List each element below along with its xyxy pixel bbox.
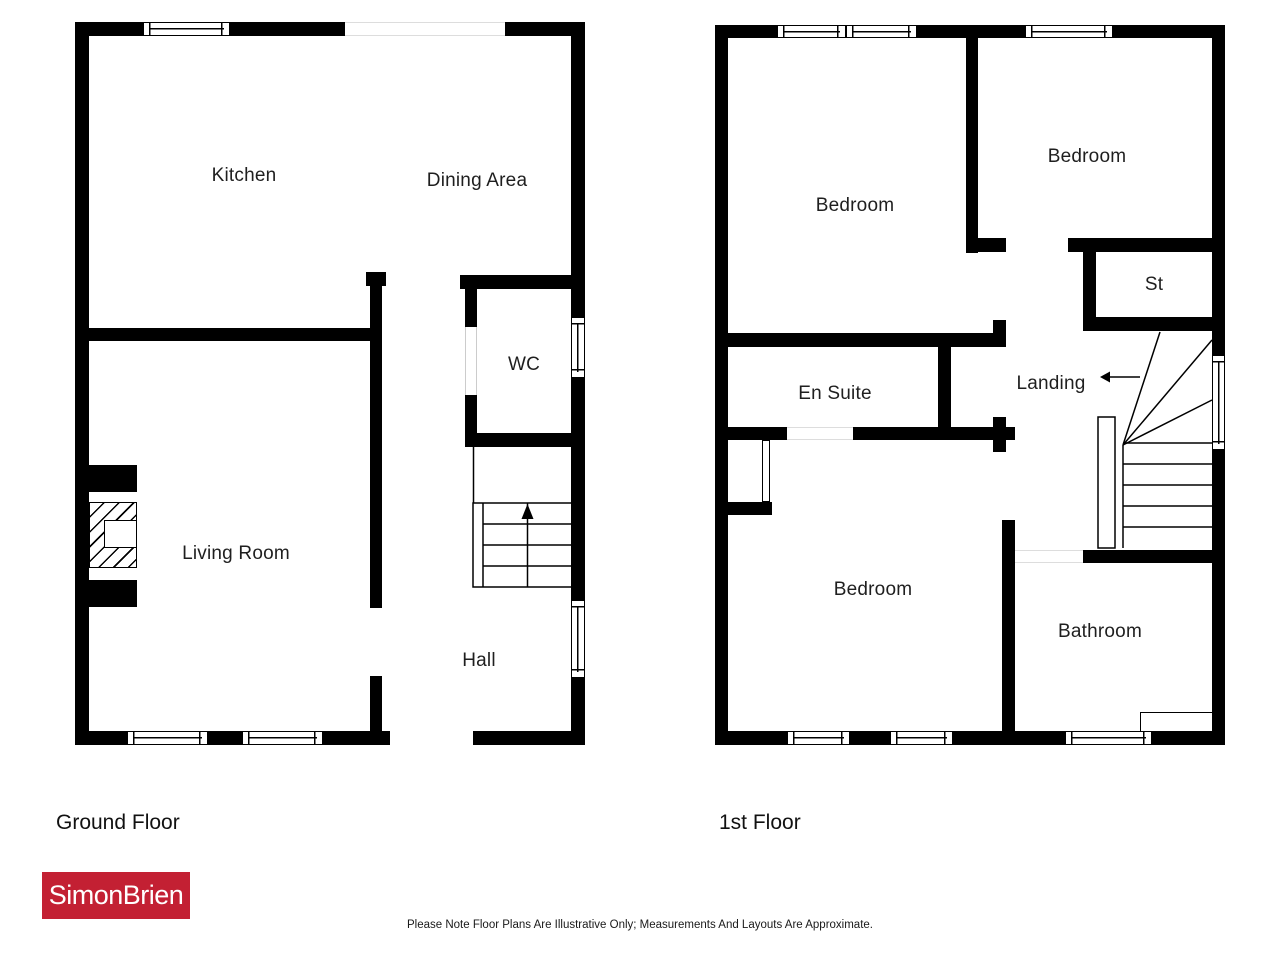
wall [993, 320, 1006, 347]
first-floor-title: 1st Floor [719, 811, 801, 835]
wall [938, 347, 951, 427]
wall [993, 417, 1006, 452]
window [777, 25, 846, 38]
closet-front [762, 440, 770, 502]
wall [473, 731, 585, 745]
wall [728, 427, 787, 440]
wall [370, 274, 382, 608]
wall [1212, 25, 1225, 355]
wall [75, 22, 89, 745]
window [1025, 25, 1113, 38]
chimney-breast [89, 465, 137, 492]
wall [1083, 550, 1212, 563]
ground-floor-title: Ground Floor [56, 811, 180, 835]
wall [1152, 731, 1225, 745]
wall [465, 433, 571, 447]
room-label-bathroom: Bathroom [1058, 621, 1142, 643]
window [127, 731, 208, 745]
wall [850, 731, 890, 745]
window [242, 731, 323, 745]
wall [917, 25, 1025, 38]
wall [465, 289, 477, 327]
wall [715, 731, 787, 745]
wall [1083, 252, 1096, 317]
staircase-up-icon [468, 444, 580, 592]
room-label-bedroom: Bedroom [834, 579, 913, 601]
room-label-wc: WC [508, 354, 540, 376]
wall-opening [345, 22, 505, 36]
window [143, 22, 230, 36]
wall [966, 238, 1006, 252]
wall [75, 731, 127, 745]
room-label-bedroom: Bedroom [816, 195, 895, 217]
disclaimer-text: Please Note Floor Plans Are Illustrative… [0, 919, 1280, 931]
wall [728, 333, 1006, 347]
room-label-kitchen: Kitchen [212, 165, 277, 187]
agency-logo-text: SimonBrien [49, 880, 184, 911]
wall [370, 676, 382, 731]
door-opening [787, 427, 853, 440]
window [1065, 731, 1152, 745]
window [571, 317, 585, 378]
wall [966, 38, 978, 253]
door-opening [1015, 550, 1083, 563]
room-label-landing: Landing [1016, 373, 1085, 395]
wall [728, 502, 772, 515]
wall [953, 731, 1065, 745]
wall [89, 328, 370, 341]
agency-logo: SimonBrien [42, 872, 190, 919]
door-opening [465, 327, 477, 395]
chimney-breast [89, 580, 137, 607]
wall [715, 25, 728, 745]
floorplan-page: Kitchen Dining Area WC Living Room Hall … [0, 0, 1280, 960]
wall [1113, 25, 1225, 38]
window [787, 731, 850, 745]
window [1212, 355, 1225, 450]
window [890, 731, 953, 745]
wall-notch [1140, 712, 1213, 732]
wall [1212, 450, 1225, 745]
window [846, 25, 917, 38]
fireplace-opening [104, 520, 137, 548]
room-label-en-suite: En Suite [798, 383, 871, 405]
wall [323, 731, 390, 745]
staircase-down-icon [1085, 330, 1215, 552]
room-label-dining-area: Dining Area [427, 170, 527, 192]
wall [1068, 238, 1212, 252]
room-label-bedroom: Bedroom [1048, 146, 1127, 168]
room-label-storage: St [1145, 274, 1163, 296]
wall [571, 378, 585, 600]
wall [208, 731, 242, 745]
wall [1002, 520, 1015, 731]
window [571, 600, 585, 678]
room-label-living-room: Living Room [182, 543, 290, 565]
room-label-hall: Hall [462, 650, 496, 672]
wall [1083, 317, 1212, 331]
wall [853, 427, 1015, 440]
wall [230, 22, 345, 36]
wall [460, 275, 571, 289]
wall [571, 22, 585, 317]
